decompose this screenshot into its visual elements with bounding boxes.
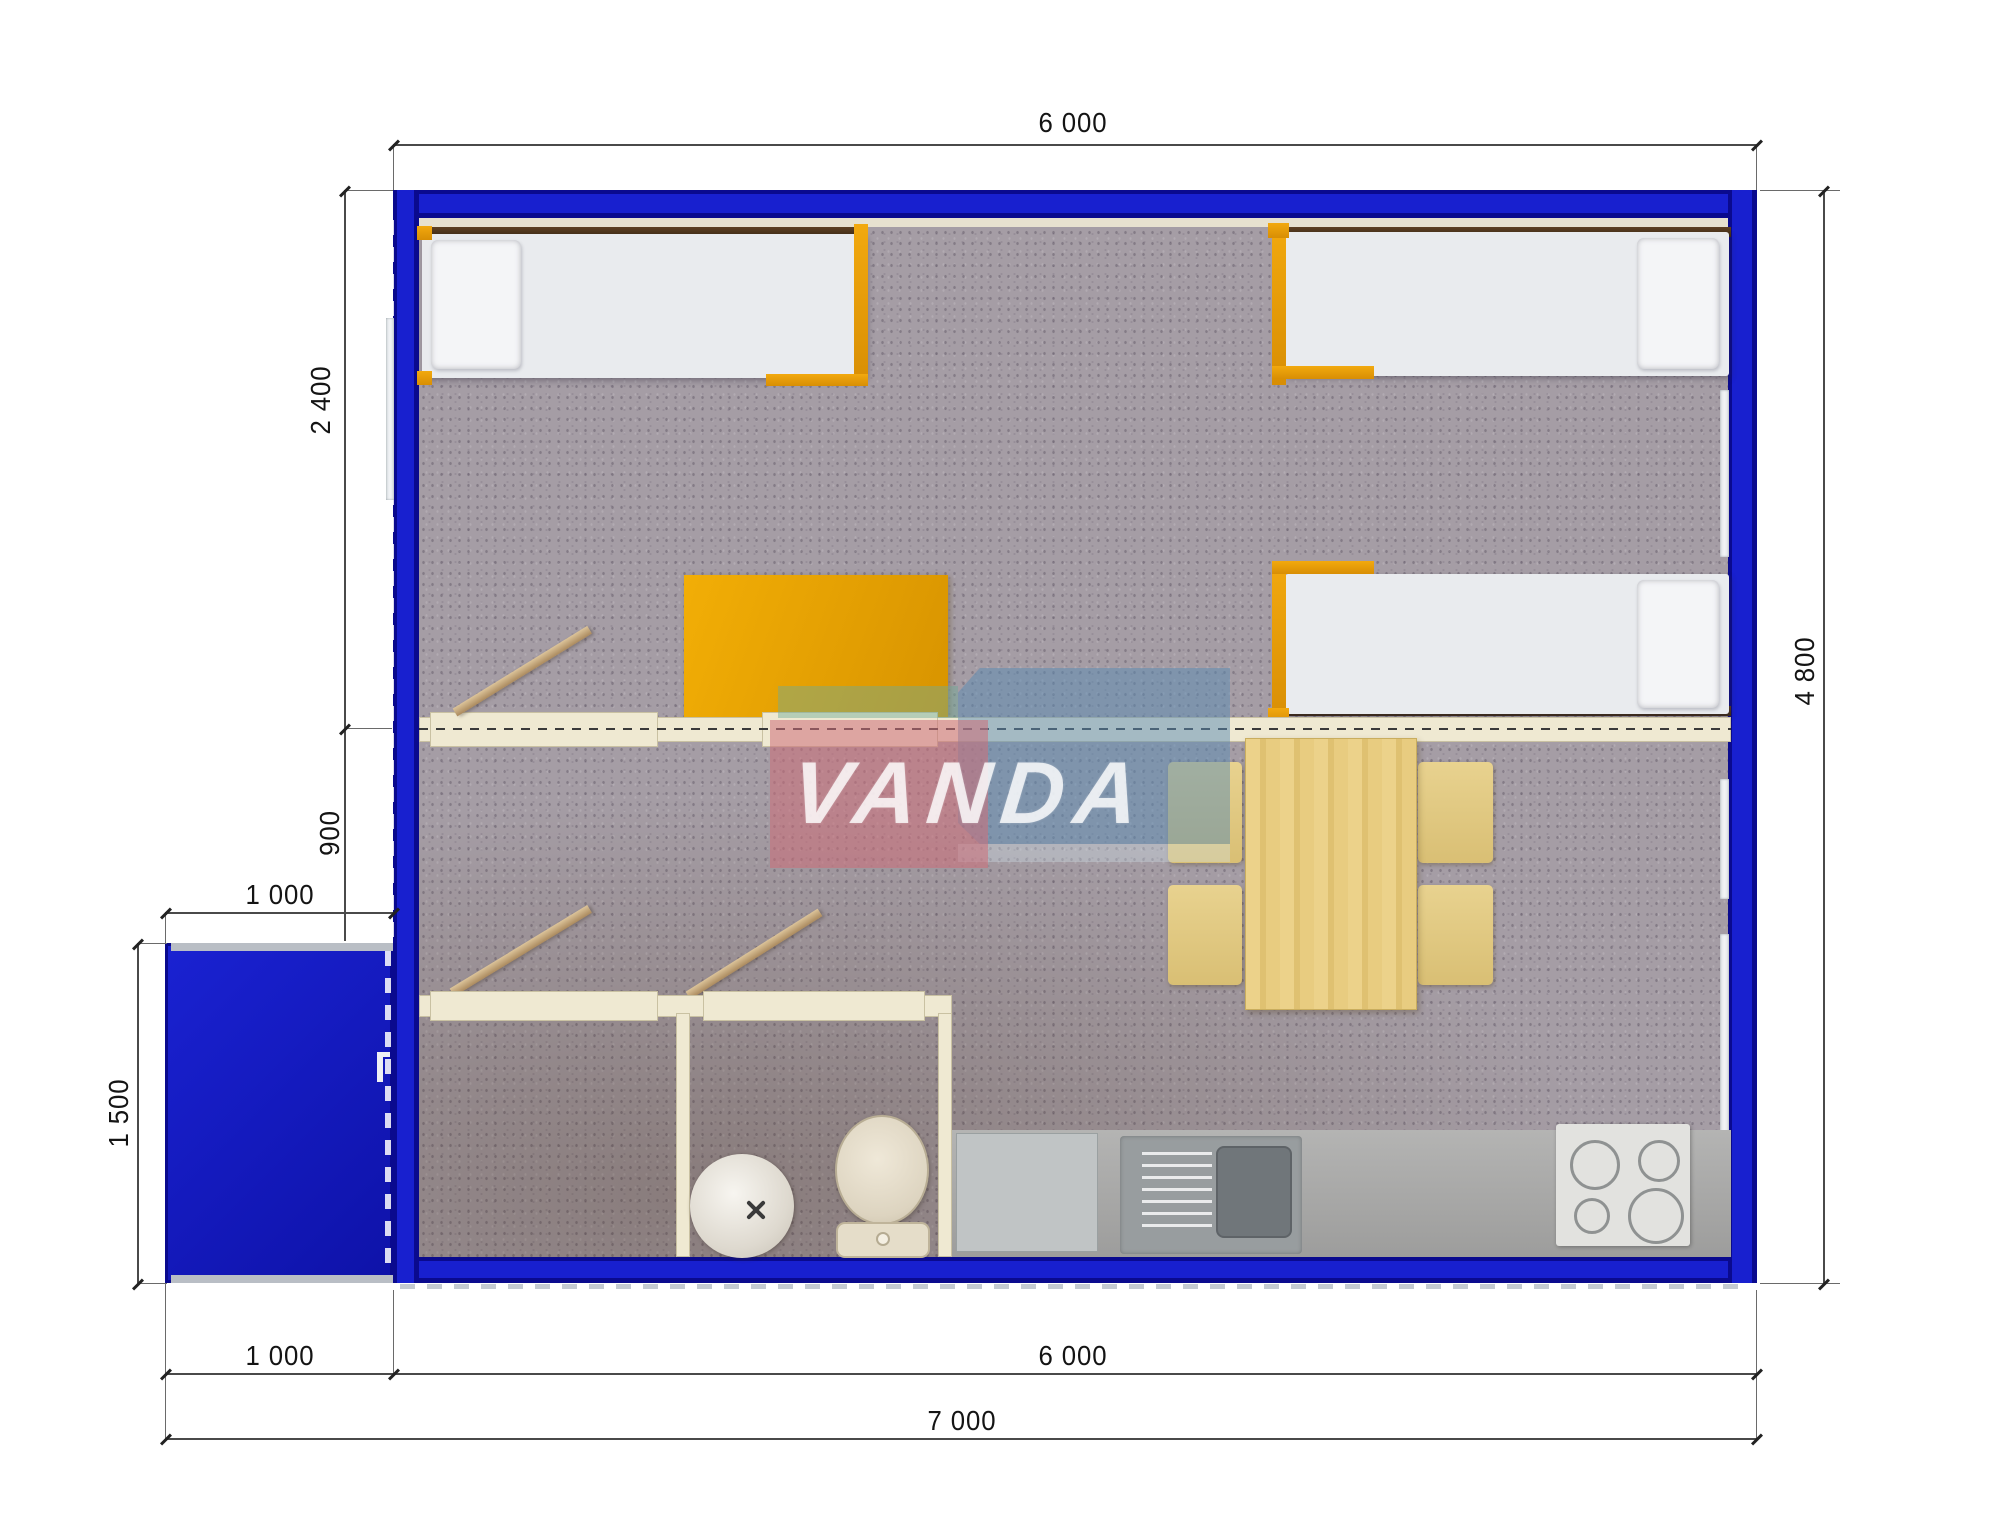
- bed3-frame-top: [1272, 561, 1374, 574]
- dim-bottom-porch: 1 000: [245, 1340, 314, 1372]
- toilet-flush-button: [876, 1232, 890, 1246]
- window-left-wall: [386, 318, 394, 500]
- drainboard-line: [1142, 1212, 1212, 1215]
- wall-top: [393, 190, 1757, 218]
- window-right-wall-2: [1720, 779, 1729, 899]
- watermark-text: VANDA: [787, 742, 1154, 844]
- drainboard-line: [1142, 1176, 1212, 1179]
- wc-wall-left: [676, 1013, 690, 1257]
- porch-deck: [165, 943, 393, 1283]
- watermark-blue-facet: [958, 844, 1230, 862]
- wall-bottom-dashed-edge: [400, 1284, 1750, 1289]
- wall-right: [1728, 190, 1757, 1283]
- dim-top-width: 6 000: [1038, 107, 1107, 139]
- kitchen-cabinet: [956, 1133, 1098, 1252]
- floor-plan-canvas: VANDA 6 000 2 400 900 1 000 1 500 4 800 …: [0, 0, 2000, 1537]
- bed2-pillow: [1637, 238, 1719, 369]
- chair-bottom-right: [1418, 885, 1493, 985]
- ext-top-left: [393, 144, 394, 190]
- drainboard-line: [1142, 1164, 1212, 1167]
- porch-step-top: [171, 943, 393, 951]
- bed3-pillow: [1637, 580, 1719, 708]
- dim-total-depth: 4 800: [1789, 636, 1821, 705]
- dining-table: [1245, 738, 1417, 1010]
- porch-step-bottom: [171, 1275, 393, 1283]
- sink-icon: [690, 1154, 794, 1258]
- toilet-icon: [835, 1115, 929, 1225]
- chair-bottom-left: [1168, 885, 1242, 985]
- dim-line-porch-top: [165, 912, 393, 914]
- dim-line-porch-depth: [137, 943, 139, 1283]
- ext-bottom-right: [1756, 1290, 1757, 1438]
- dim-bottom-total: 7 000: [927, 1405, 996, 1437]
- drainboard-line: [1142, 1224, 1212, 1227]
- kitchen-sink-basin: [1216, 1146, 1292, 1238]
- wc-wall-right: [938, 1013, 952, 1257]
- dim-line-right: [1823, 190, 1825, 1283]
- dim-porch-depth: 1 500: [103, 1078, 135, 1147]
- wall-bottom: [393, 1257, 1757, 1283]
- bathroom-wall-block-right: [703, 991, 925, 1021]
- dim-hall-depth: 900: [314, 810, 346, 856]
- porch-door-dashed-line: [385, 951, 391, 1275]
- bed3-frame-left: [1272, 561, 1286, 723]
- ext-bottom-porchleft: [165, 1283, 166, 1438]
- dim-porch-width-top: 1 000: [245, 879, 314, 911]
- ext-bottom-mainleft: [393, 1290, 394, 1373]
- bed1-corner-top-left: [417, 226, 432, 240]
- stove-burner: [1574, 1198, 1610, 1234]
- bed1-frame-bottom: [766, 374, 868, 386]
- window-right-wall-1: [1720, 390, 1729, 557]
- ext-right-top: [1760, 190, 1840, 191]
- dim-room-depth: 2 400: [305, 365, 337, 434]
- door-handle-icon-top: [377, 1052, 390, 1057]
- ext-left-partition: [344, 728, 392, 729]
- bed2-corner-top: [1268, 223, 1289, 238]
- bed1-pillow: [431, 240, 521, 369]
- drainboard-line: [1142, 1200, 1212, 1203]
- stove-burner: [1628, 1188, 1684, 1244]
- ext-porch-depth-bottom: [137, 1283, 167, 1284]
- bed2-frame-left: [1272, 223, 1286, 385]
- dim-line-top: [393, 144, 1757, 146]
- ext-porch-left-top: [165, 912, 166, 943]
- drainboard-line: [1142, 1152, 1212, 1155]
- chair-top-right: [1418, 762, 1493, 863]
- ext-right-bottom: [1760, 1283, 1840, 1284]
- bed1-corner-bottom-left: [417, 371, 432, 385]
- ext-left-walltop: [344, 190, 393, 191]
- dim-bottom-main: 6 000: [1038, 1340, 1107, 1372]
- stove-burner: [1570, 1140, 1620, 1190]
- ext-top-right: [1756, 144, 1757, 190]
- dim-line-bottom-1: [165, 1373, 1757, 1375]
- dim-line-bottom-2: [165, 1438, 1757, 1440]
- bathroom-wall-block-left: [430, 991, 658, 1021]
- watermark-teal-block: [778, 686, 958, 718]
- stove-burner: [1638, 1140, 1680, 1182]
- bed1-frame-right: [854, 224, 868, 386]
- drainboard-line: [1142, 1188, 1212, 1191]
- ext-porch-depth-top: [137, 943, 167, 944]
- bed2-frame-bottom: [1272, 366, 1374, 379]
- wall-left: [393, 190, 419, 1283]
